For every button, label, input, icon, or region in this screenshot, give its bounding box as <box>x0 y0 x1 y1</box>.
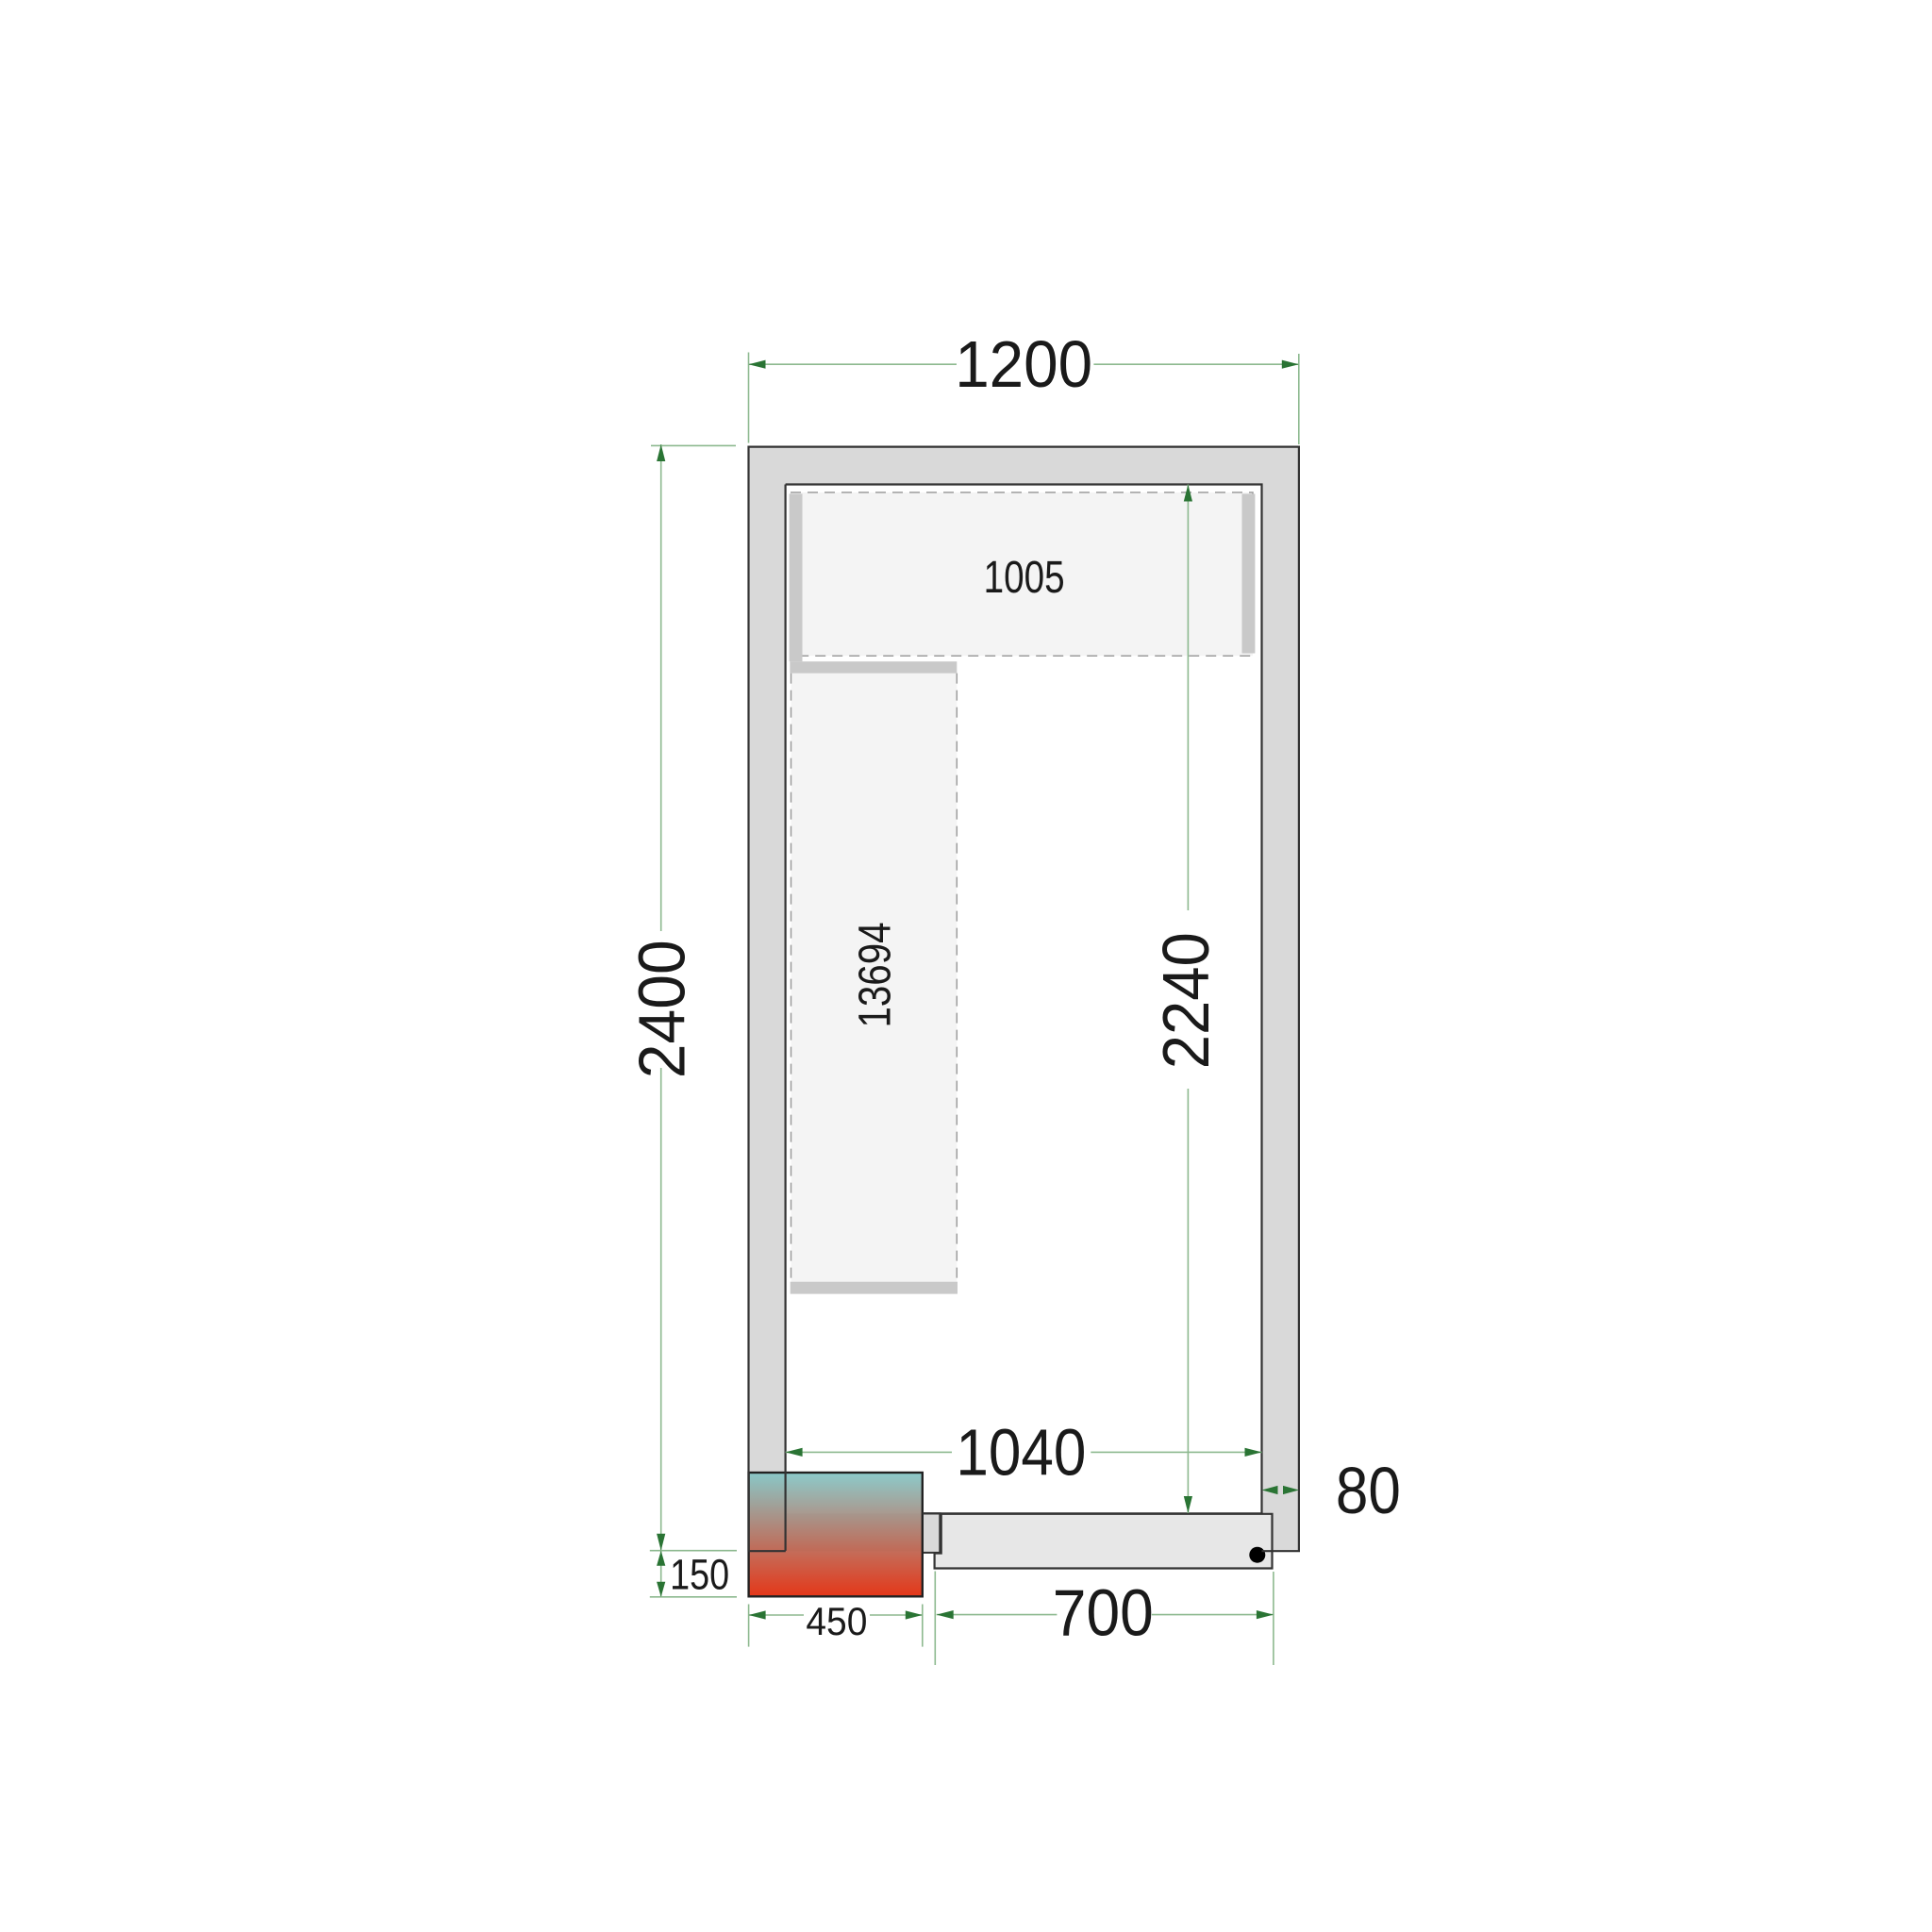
svg-text:80: 80 <box>1336 1454 1401 1527</box>
svg-text:13694: 13694 <box>851 923 901 1028</box>
svg-text:450: 450 <box>806 1599 867 1643</box>
svg-text:2400: 2400 <box>625 940 698 1078</box>
svg-text:700: 700 <box>1053 1576 1154 1650</box>
svg-text:2240: 2240 <box>1149 932 1223 1069</box>
svg-text:1005: 1005 <box>984 553 1065 603</box>
svg-text:1200: 1200 <box>955 327 1092 401</box>
svg-text:150: 150 <box>670 1551 729 1599</box>
svg-text:1040: 1040 <box>956 1415 1086 1489</box>
